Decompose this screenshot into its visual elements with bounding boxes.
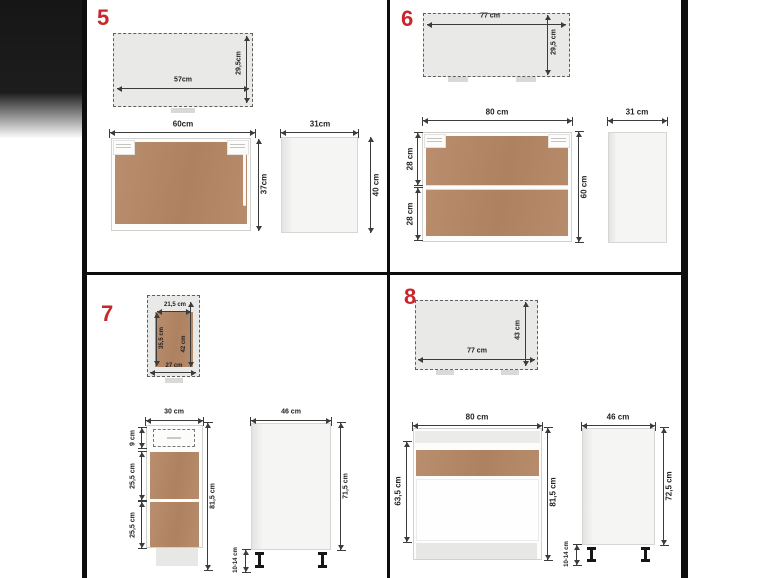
dim-label-inner-height: 63,5 cm xyxy=(394,476,403,505)
cabinet-side-view xyxy=(251,423,331,550)
package-tab xyxy=(171,108,195,113)
cabinet-side-view xyxy=(281,137,358,233)
dim-label-section-top: 28 cm xyxy=(406,148,415,171)
dim-line-front-height xyxy=(207,423,208,570)
left-fade-margin xyxy=(0,0,82,578)
drawer-front xyxy=(153,429,195,447)
cabinet-front-view xyxy=(413,428,542,560)
lift-stay xyxy=(243,150,246,206)
panel-number: 5 xyxy=(97,7,109,29)
dim-label-front-width: 80 cm xyxy=(466,413,489,422)
wood-panel-top xyxy=(150,452,199,499)
dim-line-side-height xyxy=(340,423,341,550)
dim-label-side-height: 71,5 cm xyxy=(343,473,350,499)
cabinet-plinth xyxy=(416,543,537,559)
dim-line-leg-height xyxy=(245,550,246,572)
dim-line-package-width xyxy=(427,24,566,25)
dim-line-package-height xyxy=(190,302,191,367)
dim-line-section-top xyxy=(141,452,142,500)
dim-line-front-width xyxy=(146,420,203,421)
dim-label-package-height: 29,5 cm xyxy=(551,29,558,55)
dim-label-package-inner-width: 21,5 cm xyxy=(164,302,186,308)
dim-label-section-top: 25,5 cm xyxy=(130,463,137,489)
dim-label-leg-height: 10-14 cm xyxy=(233,547,239,573)
dim-label-package-height: 29,5cm xyxy=(236,51,243,75)
dim-line-inner-height xyxy=(406,442,407,542)
adjustable-leg xyxy=(587,547,596,562)
dim-label-front-height: 60 cm xyxy=(580,176,589,199)
dim-line-side-width xyxy=(281,132,358,133)
diagram-sheet: 5 57cm 29,5cm 60cm 37cm 31cm 40 cm 6 xyxy=(0,0,770,578)
hinge-left xyxy=(113,140,135,155)
dim-label-package-width: 57cm xyxy=(174,77,192,84)
dim-label-front-width: 60cm xyxy=(173,120,193,129)
dim-label-section-bottom: 25,5 cm xyxy=(130,512,137,538)
dim-line-package-height xyxy=(547,15,548,75)
right-frame-bar xyxy=(681,0,688,578)
dim-line-package-width xyxy=(150,372,196,373)
dim-label-side-width: 46 cm xyxy=(281,409,301,416)
dim-line-side-width xyxy=(608,120,667,121)
dim-line-package-height xyxy=(525,302,526,366)
dim-label-package-inner-height: 35,5 cm xyxy=(159,327,165,349)
cabinet-front-view xyxy=(422,132,572,242)
dim-line-package-inner-height xyxy=(156,313,157,366)
dim-label-side-width: 31cm xyxy=(310,120,330,129)
dim-label-package-width: 77 cm xyxy=(467,348,487,355)
dim-label-package-width: 77 cm xyxy=(480,13,500,20)
dim-line-package-width xyxy=(117,88,249,89)
dim-label-front-height: 81,5 cm xyxy=(549,477,558,506)
cabinet-side-view xyxy=(582,428,655,545)
dim-line-front-width xyxy=(423,120,572,121)
package-tab xyxy=(501,370,519,375)
shelf xyxy=(426,185,568,190)
dim-label-package-width: 27 cm xyxy=(165,363,182,369)
dim-label-package-height: 43 cm xyxy=(515,320,522,340)
cabinet-plinth xyxy=(156,548,198,566)
adjustable-leg xyxy=(255,552,264,568)
package-tab xyxy=(436,370,454,375)
hinge-right xyxy=(548,134,570,148)
adjustable-leg xyxy=(318,552,327,568)
package-tab xyxy=(516,77,536,82)
dim-label-section-bottom: 28 cm xyxy=(406,203,415,226)
dim-line-section-bottom xyxy=(417,188,418,240)
dim-label-front-height: 81,5 cm xyxy=(210,483,217,509)
dim-line-front-width xyxy=(110,132,255,133)
package-tab xyxy=(165,378,183,383)
dim-label-drawer-height: 9 cm xyxy=(130,430,137,446)
cabinet-side-view xyxy=(608,132,667,243)
package-tab xyxy=(448,77,468,82)
dim-line-package-width xyxy=(418,359,535,360)
dim-line-package-inner-width xyxy=(157,311,191,312)
dim-line-leg-height xyxy=(576,545,577,565)
dim-label-side-width: 31 cm xyxy=(626,108,649,117)
dim-line-side-width xyxy=(582,425,655,426)
cabinet-front-view xyxy=(146,425,203,548)
dim-line-section-top xyxy=(417,133,418,185)
panel-number: 7 xyxy=(101,303,113,325)
adjustable-leg xyxy=(641,547,650,562)
dim-line-package-height xyxy=(246,36,247,103)
left-frame-bar xyxy=(82,0,87,578)
dim-line-side-width xyxy=(251,420,331,421)
dim-label-package-height: 42 cm xyxy=(181,335,187,352)
dim-label-front-width: 80 cm xyxy=(486,108,509,117)
hinge-left xyxy=(424,134,446,148)
vertical-divider xyxy=(387,0,390,578)
wood-panel-strip xyxy=(416,450,539,476)
cabinet-front-view xyxy=(111,138,251,231)
dim-label-front-height: 37cm xyxy=(260,174,269,194)
dim-line-front-width xyxy=(413,425,542,426)
dim-label-side-width: 46 cm xyxy=(607,413,630,422)
panel-number: 6 xyxy=(401,8,413,30)
dim-label-side-height: 40 cm xyxy=(372,174,381,197)
dim-label-front-width: 30 cm xyxy=(164,409,184,416)
dim-label-leg-height: 10-14 cm xyxy=(564,541,570,567)
top-rail xyxy=(415,431,540,443)
wood-panel-bottom xyxy=(150,502,199,547)
dim-label-side-height: 72,5 cm xyxy=(665,471,674,500)
package-top-view xyxy=(113,33,253,107)
door-front xyxy=(416,479,539,541)
dim-line-section-bottom xyxy=(141,502,142,548)
dim-line-drawer-height xyxy=(141,428,142,448)
horizontal-divider xyxy=(87,272,681,275)
